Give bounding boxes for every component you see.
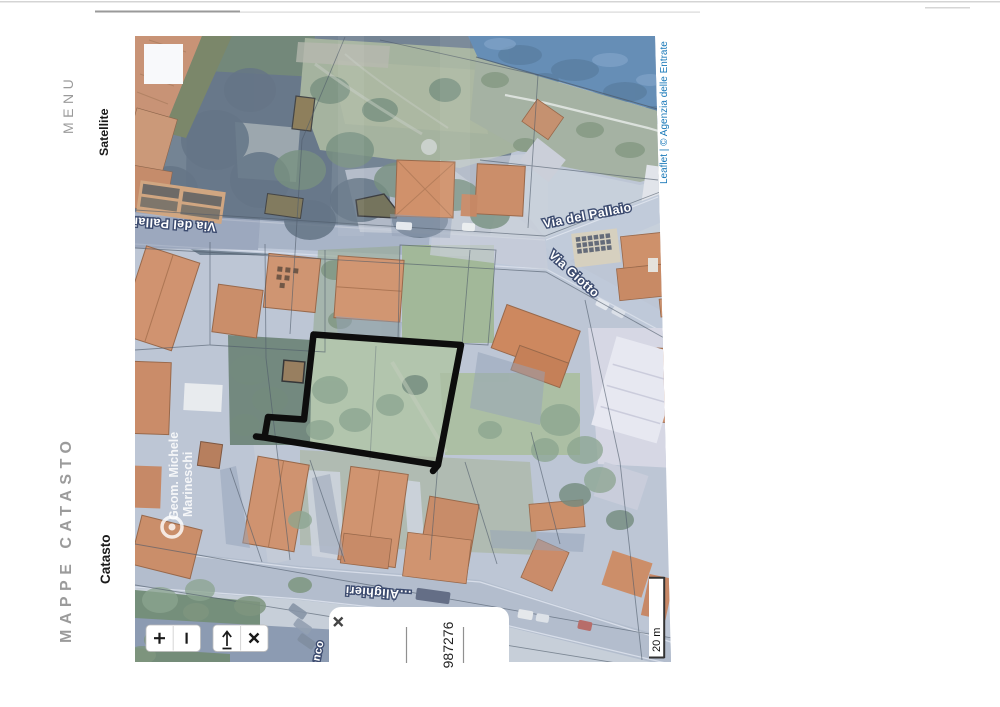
svg-text:Catasto: Catasto	[98, 534, 113, 584]
svg-text:Satellite: Satellite	[97, 108, 111, 156]
svg-text:MENU: MENU	[60, 75, 76, 134]
svg-text:20 m: 20 m	[651, 628, 663, 652]
svg-text:Geom. Michele: Geom. Michele	[167, 432, 181, 520]
svg-text:Marineschi: Marineschi	[181, 452, 195, 517]
svg-text:987276: 987276	[440, 621, 456, 668]
svg-text:MAPPE CATASTO: MAPPE CATASTO	[58, 435, 75, 643]
svg-text:Leaflet | © Agenzia delle Entr: Leaflet | © Agenzia delle Entrate	[659, 41, 670, 184]
